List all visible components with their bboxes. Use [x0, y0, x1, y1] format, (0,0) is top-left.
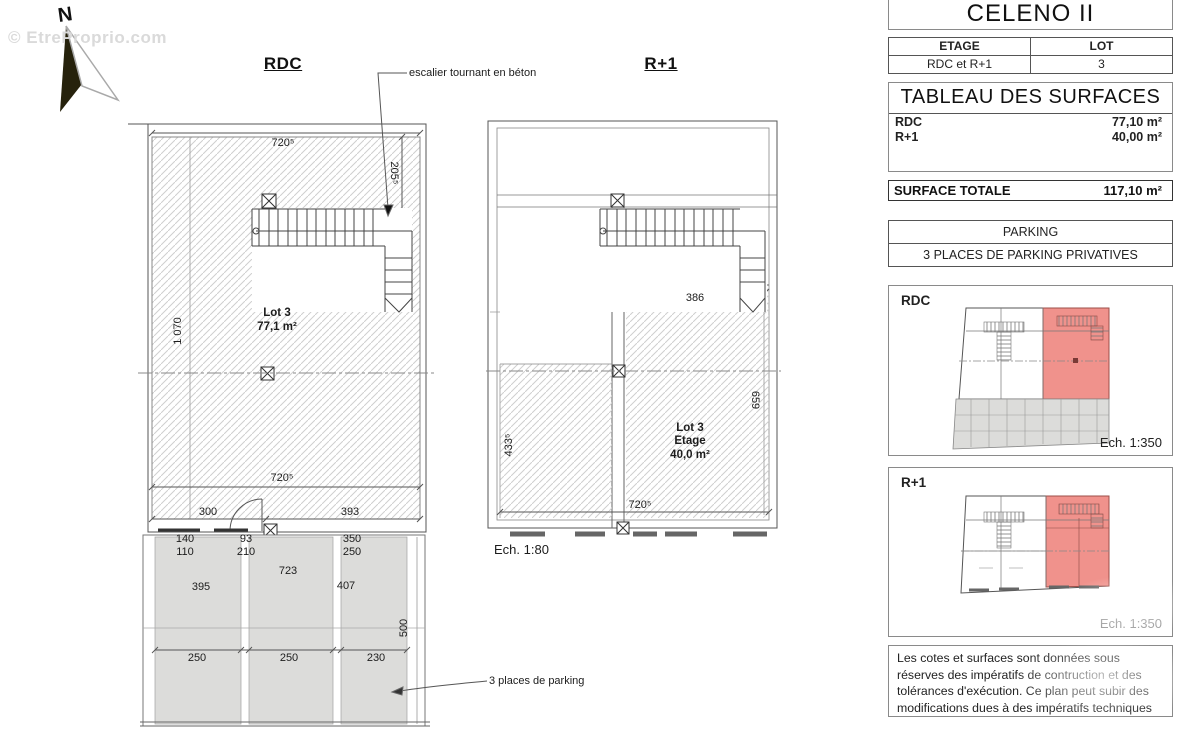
site-watermark: © EtreProprio.com [8, 28, 167, 48]
notes-box: Les cotes et surfaces sont données sous … [888, 645, 1173, 717]
parking-table: PARKING 3 PLACES DE PARKING PRIVATIVES [888, 220, 1173, 267]
rdc-stall3: 230 [367, 652, 385, 664]
r1-dim-433: 433⁵ [503, 434, 515, 457]
stair-annotation: escalier tournant en béton [409, 67, 536, 79]
surfaces-rdc-label: RDC [895, 115, 922, 129]
rdc-dim-93: 93 [240, 533, 252, 545]
rdc-lot-name: Lot 3 [263, 306, 290, 320]
surface-total-row: SURFACE TOTALE 117,10 m² [888, 180, 1173, 201]
main-scale: Ech. 1:80 [494, 542, 549, 557]
r1-plan-title: R+1 [644, 54, 677, 74]
mini-r1-drawing [889, 468, 1172, 636]
rdc-stall2: 250 [280, 652, 298, 664]
north-label: N [56, 3, 74, 28]
surfaces-r1-value: 40,00 m² [1112, 130, 1162, 144]
rdc-dim-393: 393 [341, 506, 359, 518]
rdc-dim-350: 350 [343, 533, 361, 545]
surfaces-title: TABLEAU DES SURFACES [889, 83, 1172, 114]
r1-plan-linework [486, 121, 781, 534]
project-title: CELENO II [888, 0, 1173, 30]
parking-value: 3 PLACES DE PARKING PRIVATIVES [889, 244, 1172, 267]
r1-dim-659: 659 [749, 391, 761, 409]
rdc-dim-407: 407 [337, 580, 355, 592]
rdc-dim-250: 250 [343, 546, 361, 558]
parking-title: PARKING [889, 221, 1172, 243]
r1-dim-bottom: 720⁵ [629, 499, 652, 511]
r1-dim-386: 386 [686, 292, 704, 304]
rdc-plan-linework [128, 73, 487, 726]
rdc-stall1: 250 [188, 652, 206, 664]
rdc-dim-110: 110 [176, 546, 194, 558]
parking-annotation: 3 places de parking [489, 675, 584, 687]
etage-lot-table: ETAGE LOT RDC et R+1 3 [888, 37, 1173, 74]
rdc-dim-140: 140 [176, 533, 194, 545]
rdc-plan-title: RDC [264, 54, 302, 74]
rdc-lot-area: 77,1 m² [257, 320, 297, 334]
etage-header: ETAGE [889, 38, 1031, 55]
rdc-dim-723: 723 [279, 565, 297, 577]
surfaces-row-rdc: RDC 77,10 m² [889, 114, 1172, 129]
rdc-dim-right: 205⁵ [388, 162, 400, 185]
rdc-dim-top: 720⁵ [272, 137, 295, 149]
mini-r1-scale: Ech. 1:350 [1100, 616, 1162, 631]
floorplan-drawing [0, 0, 888, 734]
surface-total-value: 117,10 m² [1103, 181, 1162, 200]
lot-value: 3 [1031, 56, 1172, 73]
surfaces-row-r1: R+1 40,00 m² [889, 129, 1172, 144]
r1-lot-area: 40,0 m² [670, 448, 710, 462]
r1-lot-floor: Etage [674, 434, 705, 448]
mini-rdc-drawing [889, 286, 1172, 455]
lot-header: LOT [1031, 38, 1172, 55]
mini-plan-r1: R+1 Ech. 1:350 [888, 467, 1173, 637]
r1-lot-name: Lot 3 [676, 421, 703, 435]
rdc-dim-210: 210 [237, 546, 255, 558]
etage-value: RDC et R+1 [889, 56, 1031, 73]
surface-total-label: SURFACE TOTALE [894, 181, 1011, 200]
mini-plan-rdc: RDC Ech. 1:350 [888, 285, 1173, 456]
surfaces-table: TABLEAU DES SURFACES RDC 77,10 m² R+1 40… [888, 82, 1173, 172]
rdc-dim-395: 395 [192, 581, 210, 593]
rdc-dim-500: 500 [398, 619, 410, 637]
surfaces-r1-label: R+1 [895, 130, 918, 144]
mini-rdc-scale: Ech. 1:350 [1100, 435, 1162, 450]
rdc-dim-bottom: 720⁵ [271, 472, 294, 484]
surfaces-rdc-value: 77,10 m² [1112, 115, 1162, 129]
rdc-dim-300: 300 [199, 506, 217, 518]
rdc-dim-left: 1 070 [172, 317, 184, 345]
floorplan-page: © EtreProprio.com N RDC escalier tournan… [0, 0, 1200, 734]
